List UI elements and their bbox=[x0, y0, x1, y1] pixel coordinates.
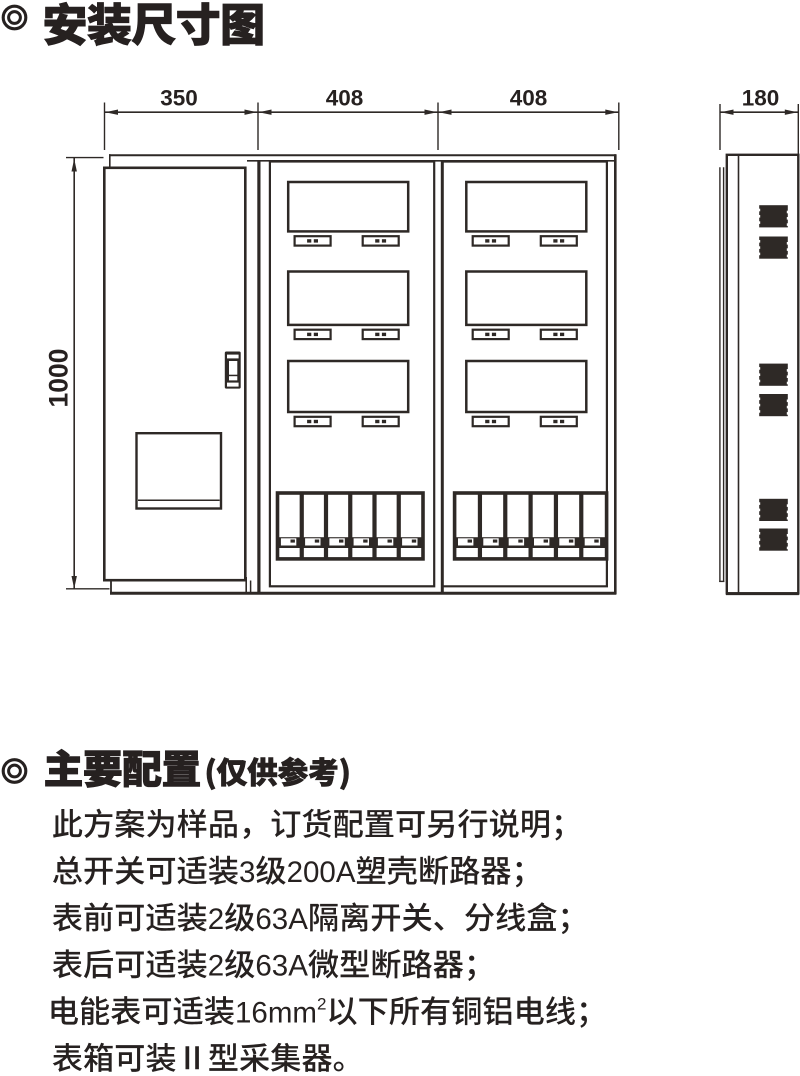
svg-text:2: 2 bbox=[208, 903, 224, 936]
svg-text:408: 408 bbox=[510, 85, 548, 110]
svg-text:350: 350 bbox=[160, 85, 198, 110]
svg-text:180: 180 bbox=[742, 85, 780, 110]
svg-text:63A: 63A bbox=[255, 903, 308, 936]
svg-text:3: 3 bbox=[239, 856, 255, 889]
svg-text:408: 408 bbox=[326, 85, 364, 110]
svg-text:63A: 63A bbox=[255, 950, 308, 983]
svg-text:2: 2 bbox=[208, 950, 224, 983]
svg-text:200A: 200A bbox=[287, 856, 356, 889]
svg-text:2: 2 bbox=[317, 995, 326, 1014]
svg-text:1000: 1000 bbox=[44, 349, 74, 408]
svg-text:16mm: 16mm bbox=[235, 997, 317, 1030]
